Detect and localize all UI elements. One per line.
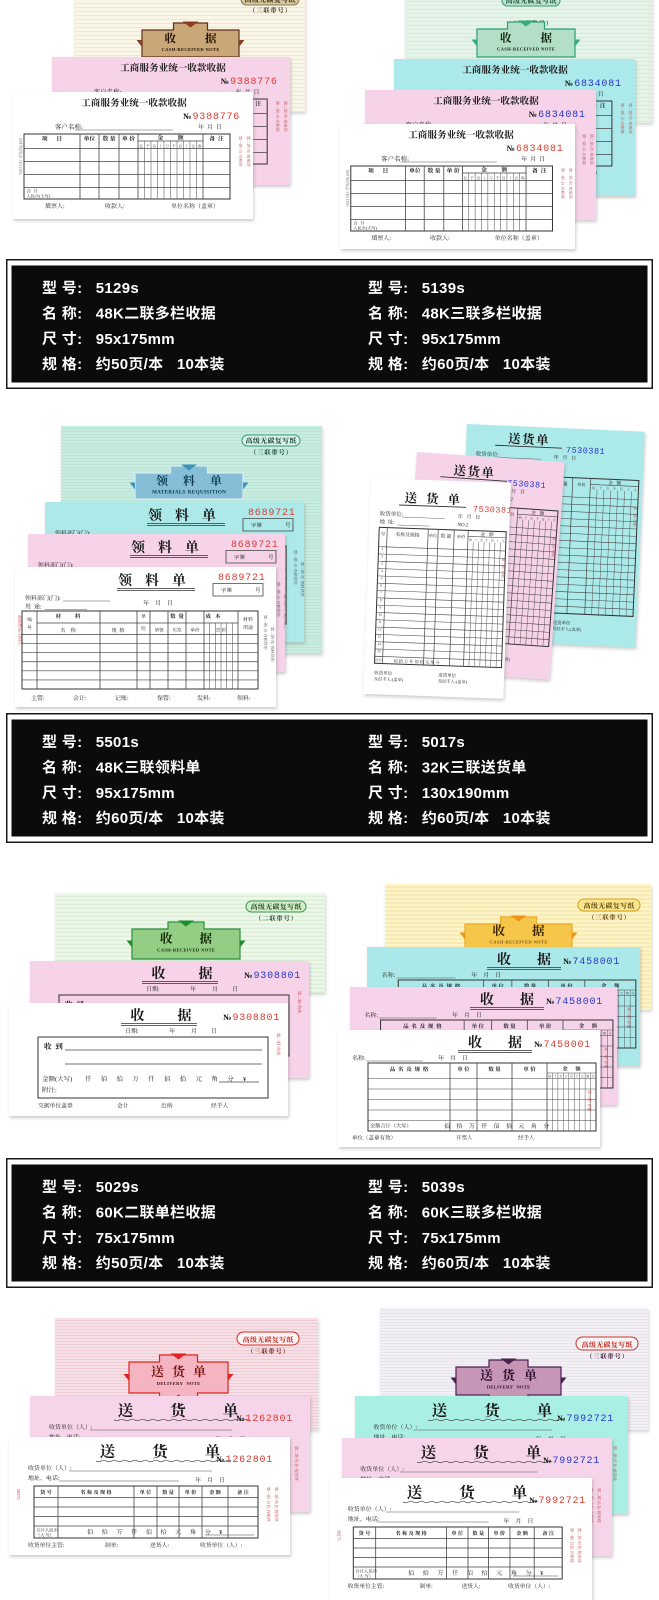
- svg-text:№: №: [543, 1456, 551, 1465]
- svg-text:10: 10: [503, 1255, 520, 1272]
- svg-text:48K: 48K: [96, 305, 124, 322]
- svg-text:60: 60: [437, 1255, 454, 1272]
- svg-text:(: (: [49, 595, 51, 602]
- svg-text:): ): [49, 194, 51, 199]
- svg-text::: :: [77, 331, 82, 348]
- svg-text:·: ·: [270, 639, 275, 640]
- svg-text:): ): [466, 679, 468, 684]
- svg-text:48K: 48K: [96, 759, 124, 776]
- svg-text:50275: 50275: [336, 1530, 341, 1540]
- svg-text:10: 10: [503, 810, 520, 827]
- svg-text::: :: [403, 280, 408, 297]
- svg-text:·55015: ·55015: [18, 632, 23, 644]
- svg-text:95x175mm: 95x175mm: [96, 331, 175, 348]
- svg-text:·: ·: [274, 1508, 279, 1509]
- svg-text:NOTE: NOTE: [201, 947, 215, 952]
- svg-text:/: /: [470, 356, 475, 373]
- svg-text:№: №: [183, 112, 191, 121]
- svg-text:7458001: 7458001: [573, 957, 621, 968]
- svg-text:6834081: 6834081: [516, 144, 564, 155]
- svg-text:5129s: 5129s: [96, 280, 139, 297]
- svg-text:·: ·: [345, 191, 350, 192]
- svg-text::: :: [209, 696, 211, 702]
- svg-text:·: ·: [283, 611, 285, 612]
- svg-text:95x175mm: 95x175mm: [422, 331, 501, 348]
- svg-text:11: 11: [378, 620, 382, 624]
- svg-text:№: №: [236, 1414, 244, 1423]
- svg-text:·: ·: [246, 148, 251, 149]
- svg-text::: :: [364, 1056, 366, 1062]
- svg-text:NO.2: NO.2: [457, 523, 469, 528]
- svg-text:·: ·: [628, 115, 633, 116]
- svg-text:№: №: [223, 1013, 231, 1022]
- svg-text::: :: [403, 734, 408, 751]
- svg-text::: :: [77, 1179, 82, 1196]
- svg-text:10: 10: [378, 613, 382, 617]
- svg-text:№: №: [565, 79, 573, 88]
- svg-text:7530381: 7530381: [473, 505, 511, 516]
- svg-text::: :: [85, 696, 87, 702]
- svg-text:/: /: [144, 356, 149, 373]
- svg-text::: :: [448, 236, 450, 242]
- svg-text::: :: [123, 204, 125, 210]
- svg-text:·: ·: [246, 153, 251, 154]
- svg-text:51295: 51295: [18, 164, 23, 174]
- svg-text:№: №: [221, 77, 229, 86]
- svg-text:№: №: [557, 1414, 565, 1423]
- svg-text:3: 3: [381, 562, 383, 566]
- svg-text::: :: [241, 1543, 243, 1549]
- svg-text:CASH-RECEIVED: CASH-RECEIVED: [497, 46, 540, 51]
- svg-text::: :: [431, 1584, 433, 1590]
- svg-text:8689721: 8689721: [231, 540, 279, 551]
- svg-text:6834081: 6834081: [574, 79, 622, 90]
- svg-text::: :: [403, 305, 408, 322]
- svg-text:5017s: 5017s: [422, 734, 465, 751]
- svg-text::(: :(: [569, 627, 572, 632]
- svg-text::: :: [77, 280, 82, 297]
- svg-text:1262801: 1262801: [246, 1414, 294, 1425]
- svg-text:2: 2: [381, 554, 383, 558]
- svg-text:(: (: [55, 1076, 57, 1083]
- svg-text::: :: [77, 1230, 82, 1247]
- svg-text:5139s: 5139s: [422, 280, 465, 297]
- svg-text:·: ·: [18, 159, 23, 160]
- svg-text:60: 60: [111, 810, 128, 827]
- svg-text:·: ·: [620, 115, 625, 116]
- svg-text:·: ·: [577, 1549, 582, 1550]
- svg-text:130x190mm: 130x190mm: [422, 785, 510, 802]
- svg-text:·: ·: [238, 148, 243, 149]
- svg-text:·: ·: [604, 1059, 609, 1060]
- svg-text::: :: [403, 1179, 408, 1196]
- svg-text::: :: [169, 696, 171, 702]
- svg-text:): ): [70, 1076, 72, 1083]
- svg-text::: :: [479, 1584, 481, 1590]
- svg-text:7: 7: [380, 591, 382, 595]
- svg-text:·: ·: [628, 120, 633, 121]
- svg-text::: :: [77, 734, 82, 751]
- svg-text:·: ·: [266, 1499, 271, 1500]
- svg-text:·: ·: [294, 1458, 299, 1459]
- svg-text:75x175mm: 75x175mm: [96, 1230, 175, 1247]
- svg-text:REQUISITION: REQUISITION: [188, 489, 226, 495]
- svg-text:): ): [509, 657, 511, 662]
- svg-text:): ): [580, 627, 582, 632]
- svg-text::: :: [63, 204, 65, 210]
- svg-text:/: /: [470, 1255, 475, 1272]
- svg-text::: :: [77, 1255, 82, 1272]
- svg-text::: :: [403, 1255, 408, 1272]
- svg-text:9388776: 9388776: [193, 112, 241, 123]
- svg-text::: :: [40, 605, 42, 611]
- svg-text:10: 10: [177, 1255, 194, 1272]
- svg-text:32K: 32K: [422, 759, 450, 776]
- svg-text::: :: [403, 331, 408, 348]
- svg-text:5: 5: [381, 576, 383, 580]
- svg-text:48K: 48K: [422, 305, 450, 322]
- svg-text:10: 10: [177, 810, 194, 827]
- svg-text::: :: [117, 1543, 119, 1549]
- svg-text::: :: [403, 1204, 408, 1221]
- svg-text:M: M: [345, 170, 350, 174]
- svg-text:60: 60: [437, 810, 454, 827]
- svg-text:7458001: 7458001: [544, 1040, 592, 1051]
- svg-text:CASH-RECEIVED: CASH-RECEIVED: [162, 47, 205, 52]
- svg-text:15: 15: [377, 649, 381, 653]
- svg-text:50: 50: [111, 356, 128, 373]
- svg-text:·: ·: [270, 644, 275, 645]
- svg-text:10: 10: [503, 356, 520, 373]
- svg-text:№: №: [506, 144, 514, 153]
- svg-text::: :: [393, 520, 395, 526]
- svg-text:·: ·: [612, 1458, 617, 1459]
- svg-text:№: №: [529, 1496, 537, 1505]
- svg-text:5039s: 5039s: [422, 1179, 465, 1196]
- svg-text:·: ·: [582, 146, 587, 147]
- svg-text::: :: [43, 696, 45, 702]
- svg-text:·: ·: [300, 579, 304, 580]
- svg-text::: :: [77, 810, 82, 827]
- svg-text:·: ·: [274, 1499, 279, 1500]
- svg-text::: :: [403, 1230, 408, 1247]
- svg-text::: :: [63, 1543, 65, 1549]
- svg-text:7458001: 7458001: [556, 997, 604, 1008]
- svg-text:): ): [402, 677, 404, 682]
- svg-text:·: ·: [597, 1500, 602, 1501]
- svg-text::: :: [77, 759, 82, 776]
- svg-text:·: ·: [577, 1540, 582, 1541]
- svg-text:·: ·: [632, 518, 636, 519]
- svg-text::: :: [376, 1013, 378, 1019]
- svg-text:№: №: [216, 1455, 224, 1464]
- svg-text:/: /: [470, 810, 475, 827]
- svg-text::: :: [383, 1584, 385, 1590]
- svg-text:DELIVERY: DELIVERY: [157, 1381, 184, 1386]
- svg-text:·: ·: [597, 1509, 602, 1510]
- svg-text:·: ·: [568, 185, 573, 186]
- svg-text:CASH-RECEIVED: CASH-RECEIVED: [489, 940, 532, 945]
- svg-text:50275: 50275: [16, 1489, 21, 1499]
- svg-text::: :: [77, 356, 82, 373]
- svg-text:·: ·: [560, 180, 565, 181]
- svg-text:·: ·: [275, 118, 280, 119]
- svg-text:7530381: 7530381: [566, 445, 606, 457]
- svg-text:№: №: [563, 957, 571, 966]
- svg-text:·: ·: [275, 113, 280, 114]
- svg-text::: :: [55, 1087, 57, 1094]
- svg-text::: :: [249, 696, 251, 702]
- svg-text::: :: [77, 785, 82, 802]
- svg-text:·: ·: [238, 153, 243, 154]
- svg-text::(: :(: [455, 679, 458, 684]
- svg-text:·: ·: [570, 1549, 575, 1550]
- svg-text:·: ·: [263, 627, 268, 628]
- svg-text::: :: [403, 759, 408, 776]
- svg-text:14: 14: [377, 642, 381, 646]
- svg-text:5029s: 5029s: [96, 1179, 139, 1196]
- svg-text:·: ·: [589, 151, 594, 152]
- svg-text:6: 6: [380, 584, 382, 588]
- svg-text:60K: 60K: [422, 1204, 450, 1221]
- svg-text:5501s: 5501s: [96, 734, 139, 751]
- svg-text:4: 4: [381, 569, 383, 573]
- svg-text:NOTE: NOTE: [533, 940, 547, 945]
- svg-text::: :: [167, 1543, 169, 1549]
- svg-text:·: ·: [294, 1467, 299, 1468]
- svg-text:9: 9: [380, 605, 382, 609]
- svg-text:·: ·: [276, 599, 281, 600]
- svg-text:50: 50: [111, 1255, 128, 1272]
- svg-text::: :: [127, 696, 129, 702]
- svg-text::(: :(: [391, 677, 394, 682]
- svg-text:/: /: [144, 1255, 149, 1272]
- svg-text:8689721: 8689721: [218, 573, 266, 584]
- svg-text::: :: [549, 1584, 551, 1590]
- svg-text:8: 8: [380, 598, 382, 602]
- svg-text:60: 60: [437, 356, 454, 373]
- svg-text:·: ·: [283, 606, 285, 607]
- svg-text:·: ·: [551, 548, 555, 550]
- svg-text:CASH-RECEIVED: CASH-RECEIVED: [157, 947, 200, 952]
- svg-text:·: ·: [582, 151, 587, 152]
- svg-text:·: ·: [297, 1004, 302, 1005]
- svg-text:12: 12: [378, 627, 382, 631]
- svg-text:9388776: 9388776: [230, 77, 278, 88]
- svg-text:):: ):: [57, 595, 61, 602]
- svg-text:·: ·: [587, 1102, 592, 1103]
- svg-text::: :: [403, 810, 408, 827]
- svg-text:·: ·: [560, 185, 565, 186]
- svg-text:NOTE: NOTE: [206, 47, 220, 52]
- svg-text:75x175mm: 75x175mm: [422, 1230, 501, 1247]
- svg-text:№: №: [244, 971, 252, 980]
- svg-text:·: ·: [501, 569, 505, 570]
- svg-text:1: 1: [382, 547, 384, 551]
- svg-text:NOTE: NOTE: [186, 1381, 200, 1386]
- svg-text:·: ·: [283, 118, 288, 119]
- svg-text:7992721: 7992721: [539, 1496, 587, 1507]
- svg-text:·: ·: [568, 180, 573, 181]
- svg-text::: :: [77, 305, 82, 322]
- svg-text:№: №: [534, 1040, 542, 1049]
- svg-text:10: 10: [177, 356, 194, 373]
- svg-text:·: ·: [276, 1046, 281, 1047]
- svg-text:9308801: 9308801: [254, 971, 302, 982]
- svg-text:·: ·: [626, 1019, 631, 1020]
- svg-text:·: ·: [589, 146, 594, 147]
- svg-text:№: №: [546, 997, 554, 1006]
- svg-text:DELIVERY: DELIVERY: [487, 1384, 514, 1389]
- svg-text::: :: [158, 987, 160, 993]
- svg-text:9308801: 9308801: [233, 1013, 281, 1024]
- svg-text:NOTE: NOTE: [516, 1384, 530, 1389]
- svg-text:·: ·: [263, 632, 268, 633]
- svg-text::: :: [389, 236, 391, 242]
- svg-text:·: ·: [276, 594, 281, 595]
- svg-text:·: ·: [293, 562, 298, 563]
- svg-text:6834081: 6834081: [538, 110, 586, 121]
- svg-text:·: ·: [283, 113, 288, 114]
- svg-text:8689721: 8689721: [248, 508, 296, 519]
- svg-text:·: ·: [300, 574, 304, 575]
- svg-text::: :: [403, 356, 408, 373]
- svg-text:№: №: [529, 110, 537, 119]
- svg-text::: :: [403, 785, 408, 802]
- svg-text:1262801: 1262801: [226, 1455, 274, 1466]
- svg-text:): ): [376, 226, 378, 231]
- svg-text:MATERIALS: MATERIALS: [152, 489, 186, 495]
- svg-text:95x175mm: 95x175mm: [96, 785, 175, 802]
- svg-text:·: ·: [293, 567, 298, 568]
- svg-text:7992721: 7992721: [567, 1414, 615, 1425]
- svg-text:·: ·: [570, 1540, 575, 1541]
- svg-text::: :: [137, 1029, 139, 1035]
- svg-text:·: ·: [620, 120, 625, 121]
- svg-text:NOTE: NOTE: [541, 46, 555, 51]
- svg-text:7992721: 7992721: [553, 1456, 601, 1467]
- svg-text:13: 13: [378, 635, 382, 639]
- svg-text::: :: [394, 973, 396, 979]
- svg-text:·: ·: [612, 1467, 617, 1468]
- svg-text::: :: [77, 1204, 82, 1221]
- svg-text:/: /: [144, 810, 149, 827]
- svg-text:60K: 60K: [96, 1204, 124, 1221]
- svg-text:M: M: [18, 138, 23, 142]
- svg-text:51295: 51295: [345, 196, 350, 206]
- svg-text:·: ·: [266, 1508, 271, 1509]
